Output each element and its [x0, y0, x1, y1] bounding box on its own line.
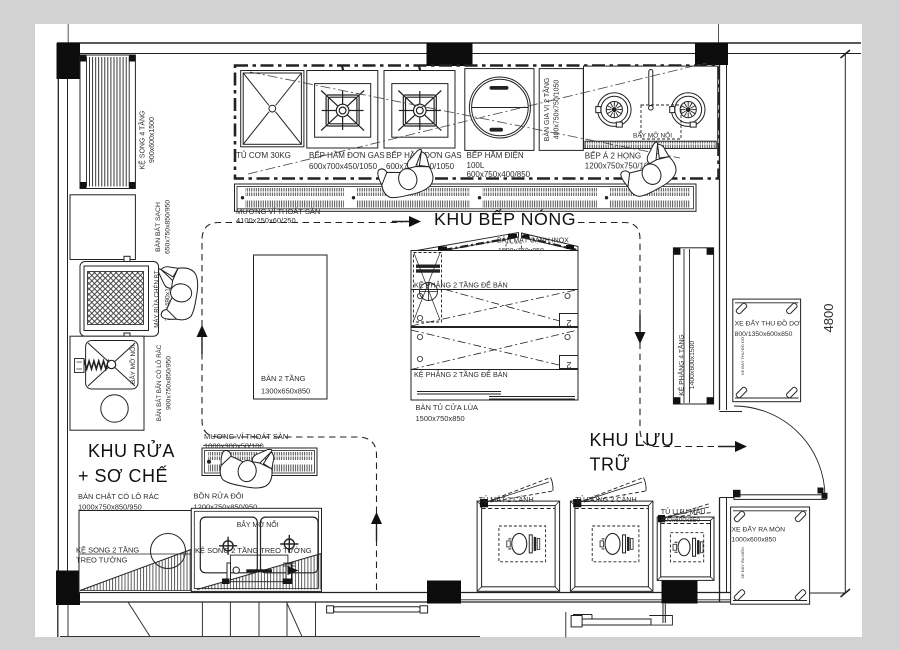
svg-text:100L: 100L	[467, 161, 485, 170]
svg-text:XE ĐẨY THU ĐỒ DƠ: XE ĐẨY THU ĐỒ DƠ	[740, 336, 745, 375]
svg-text:BẾP HẦM ĐƠN GAS: BẾP HẦM ĐƠN GAS	[309, 150, 385, 160]
svg-text:TREO TƯỜNG: TREO TƯỜNG	[76, 556, 128, 565]
svg-text:BÀN TỦ CỬA LÙA: BÀN TỦ CỬA LÙA	[416, 403, 479, 412]
svg-text:1400x600x1500: 1400x600x1500	[689, 341, 696, 390]
svg-text:4100x250x60/250: 4100x250x60/250	[236, 216, 296, 225]
svg-text:TỦ LƯU MẪU: TỦ LƯU MẪU	[661, 507, 706, 516]
svg-text:XE ĐẨY RA MÓN: XE ĐẨY RA MÓN	[732, 525, 786, 534]
svg-text:900x600x1500: 900x600x1500	[149, 117, 156, 163]
svg-text:4800: 4800	[821, 304, 836, 333]
svg-text:BẪY MỠ NỔI: BẪY MỠ NỔI	[633, 131, 672, 140]
svg-text:KHU BẾP NÓNG: KHU BẾP NÓNG	[434, 208, 576, 229]
svg-text:600x700x450/1050: 600x700x450/1050	[309, 162, 378, 171]
svg-text:2: 2	[566, 360, 571, 370]
svg-text:650x750x850/950: 650x750x850/950	[165, 200, 172, 254]
svg-text:MÁY RỬA CHÉN BT: MÁY RỬA CHÉN BT	[154, 270, 161, 328]
svg-text:KỆ SONG 2 TẦNG TREO TƯỜNG: KỆ SONG 2 TẦNG TREO TƯỜNG	[195, 545, 312, 555]
svg-text:TỦ CƠM 30KG: TỦ CƠM 30KG	[236, 151, 291, 160]
svg-text:BẪY MỠ NỔI: BẪY MỠ NỔI	[237, 520, 279, 529]
svg-text:400x750x750/1050: 400x750x750/1050	[554, 80, 561, 140]
svg-text:1000x600x850: 1000x600x850	[732, 537, 777, 544]
svg-text:BẪY MỠ NỔI: BẪY MỠ NỔI	[128, 345, 137, 384]
svg-text:MƯƠNG VỈ THOÁT SÀN: MƯƠNG VỈ THOÁT SÀN	[236, 207, 320, 216]
svg-text:BỒN RỬA ĐÔI: BỒN RỬA ĐÔI	[194, 491, 244, 501]
svg-text:1500x750x850: 1500x750x850	[416, 414, 465, 423]
svg-text:+ SƠ CHẾ: + SƠ CHẾ	[78, 465, 168, 486]
svg-text:BÀN 2 TẦNG: BÀN 2 TẦNG	[261, 373, 306, 383]
svg-text:600x750x400/850: 600x750x400/850	[467, 170, 531, 179]
svg-text:TRỮ: TRỮ	[590, 454, 631, 475]
svg-text:BÀN BÁT BẨN CÓ LÔ RÁC: BÀN BÁT BẨN CÓ LÔ RÁC	[156, 344, 163, 421]
svg-text:BẾP HẦM ĐIỆN: BẾP HẦM ĐIỆN	[467, 150, 524, 160]
svg-text:600x600x850: 600x600x850	[661, 517, 700, 524]
svg-text:KHU LƯU: KHU LƯU	[590, 430, 675, 450]
svg-text:KHU RỬA: KHU RỬA	[88, 440, 175, 461]
svg-text:BÀN MÁT CẠNH INOX: BÀN MÁT CẠNH INOX	[497, 236, 569, 245]
svg-text:KỆ PHẲNG 2 TẦNG ĐỂ BÀN: KỆ PHẲNG 2 TẦNG ĐỂ BÀN	[414, 280, 508, 290]
svg-text:KỆ SONG 2 TẦNG: KỆ SONG 2 TẦNG	[76, 545, 139, 555]
svg-text:BÀN BÁT SẠCH: BÀN BÁT SẠCH	[153, 202, 162, 252]
svg-text:KỆ PHẲNG 2 TẦNG ĐỂ BÀN: KỆ PHẲNG 2 TẦNG ĐỂ BÀN	[414, 369, 508, 379]
svg-text:1300x650x850: 1300x650x850	[261, 387, 310, 396]
svg-text:TỦ MÁT 2 CÁNH: TỦ MÁT 2 CÁNH	[479, 495, 534, 504]
svg-text:TỦ ĐÔNG 2 CÁNH: TỦ ĐÔNG 2 CÁNH	[575, 495, 637, 504]
svg-text:BÀN CHẶT CÓ LÔ RÁC: BÀN CHẶT CÓ LÔ RÁC	[78, 492, 160, 501]
svg-text:1000x300x50/100: 1000x300x50/100	[204, 442, 264, 451]
svg-text:XE ĐẨY RA MÓN: XE ĐẨY RA MÓN	[740, 547, 745, 579]
svg-text:BẾP Á 2 HỌNG: BẾP Á 2 HỌNG	[585, 151, 641, 161]
svg-text:900x750x850/950: 900x750x850/950	[166, 356, 173, 410]
